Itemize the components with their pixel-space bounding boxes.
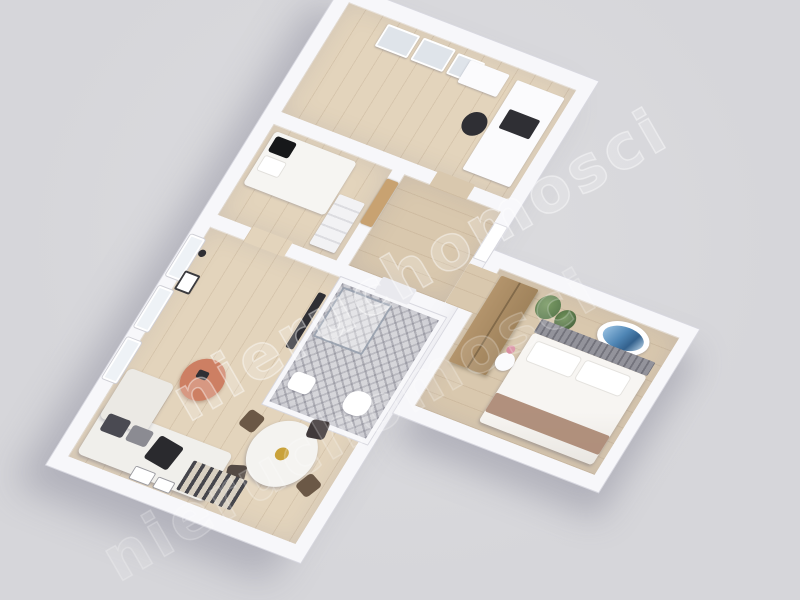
floor-plan-render: nieruchomosci nieruchomosci (0, 0, 800, 600)
apartment-3d-plan (15, 0, 800, 600)
